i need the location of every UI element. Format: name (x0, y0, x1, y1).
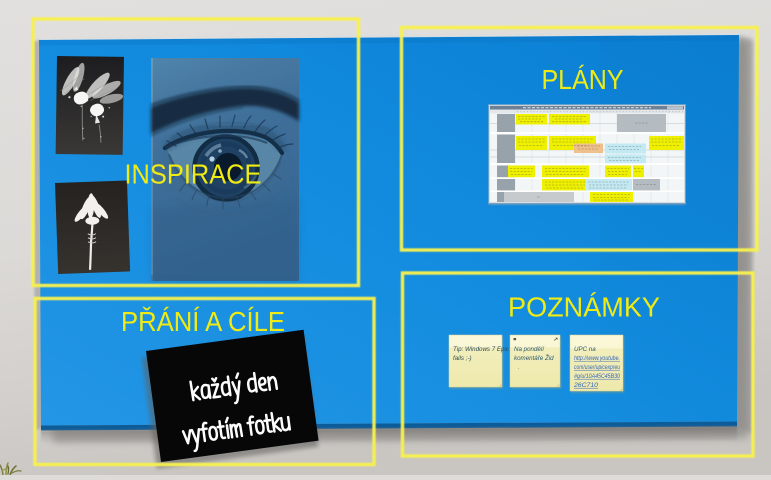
svg-text:komentáře Žid: komentáře Žid (514, 354, 554, 362)
svg-text:PŘÁNÍ A CÍLE: PŘÁNÍ A CÍLE (121, 306, 285, 337)
svg-text:fails ;-): fails ;-) (453, 355, 472, 362)
svg-text:PLÁNY: PLÁNY (542, 64, 624, 95)
svg-text:UPC na: UPC na (574, 346, 596, 353)
svg-text:Na pondělí: Na pondělí (514, 346, 545, 353)
svg-text:.: . (518, 365, 519, 371)
svg-text:POZNÁMKY: POZNÁMKY (508, 292, 660, 323)
svg-text:Tip: Windows 7 Epic: Tip: Windows 7 Epic (453, 346, 510, 353)
svg-text:INSPIRACE: INSPIRACE (125, 158, 262, 189)
